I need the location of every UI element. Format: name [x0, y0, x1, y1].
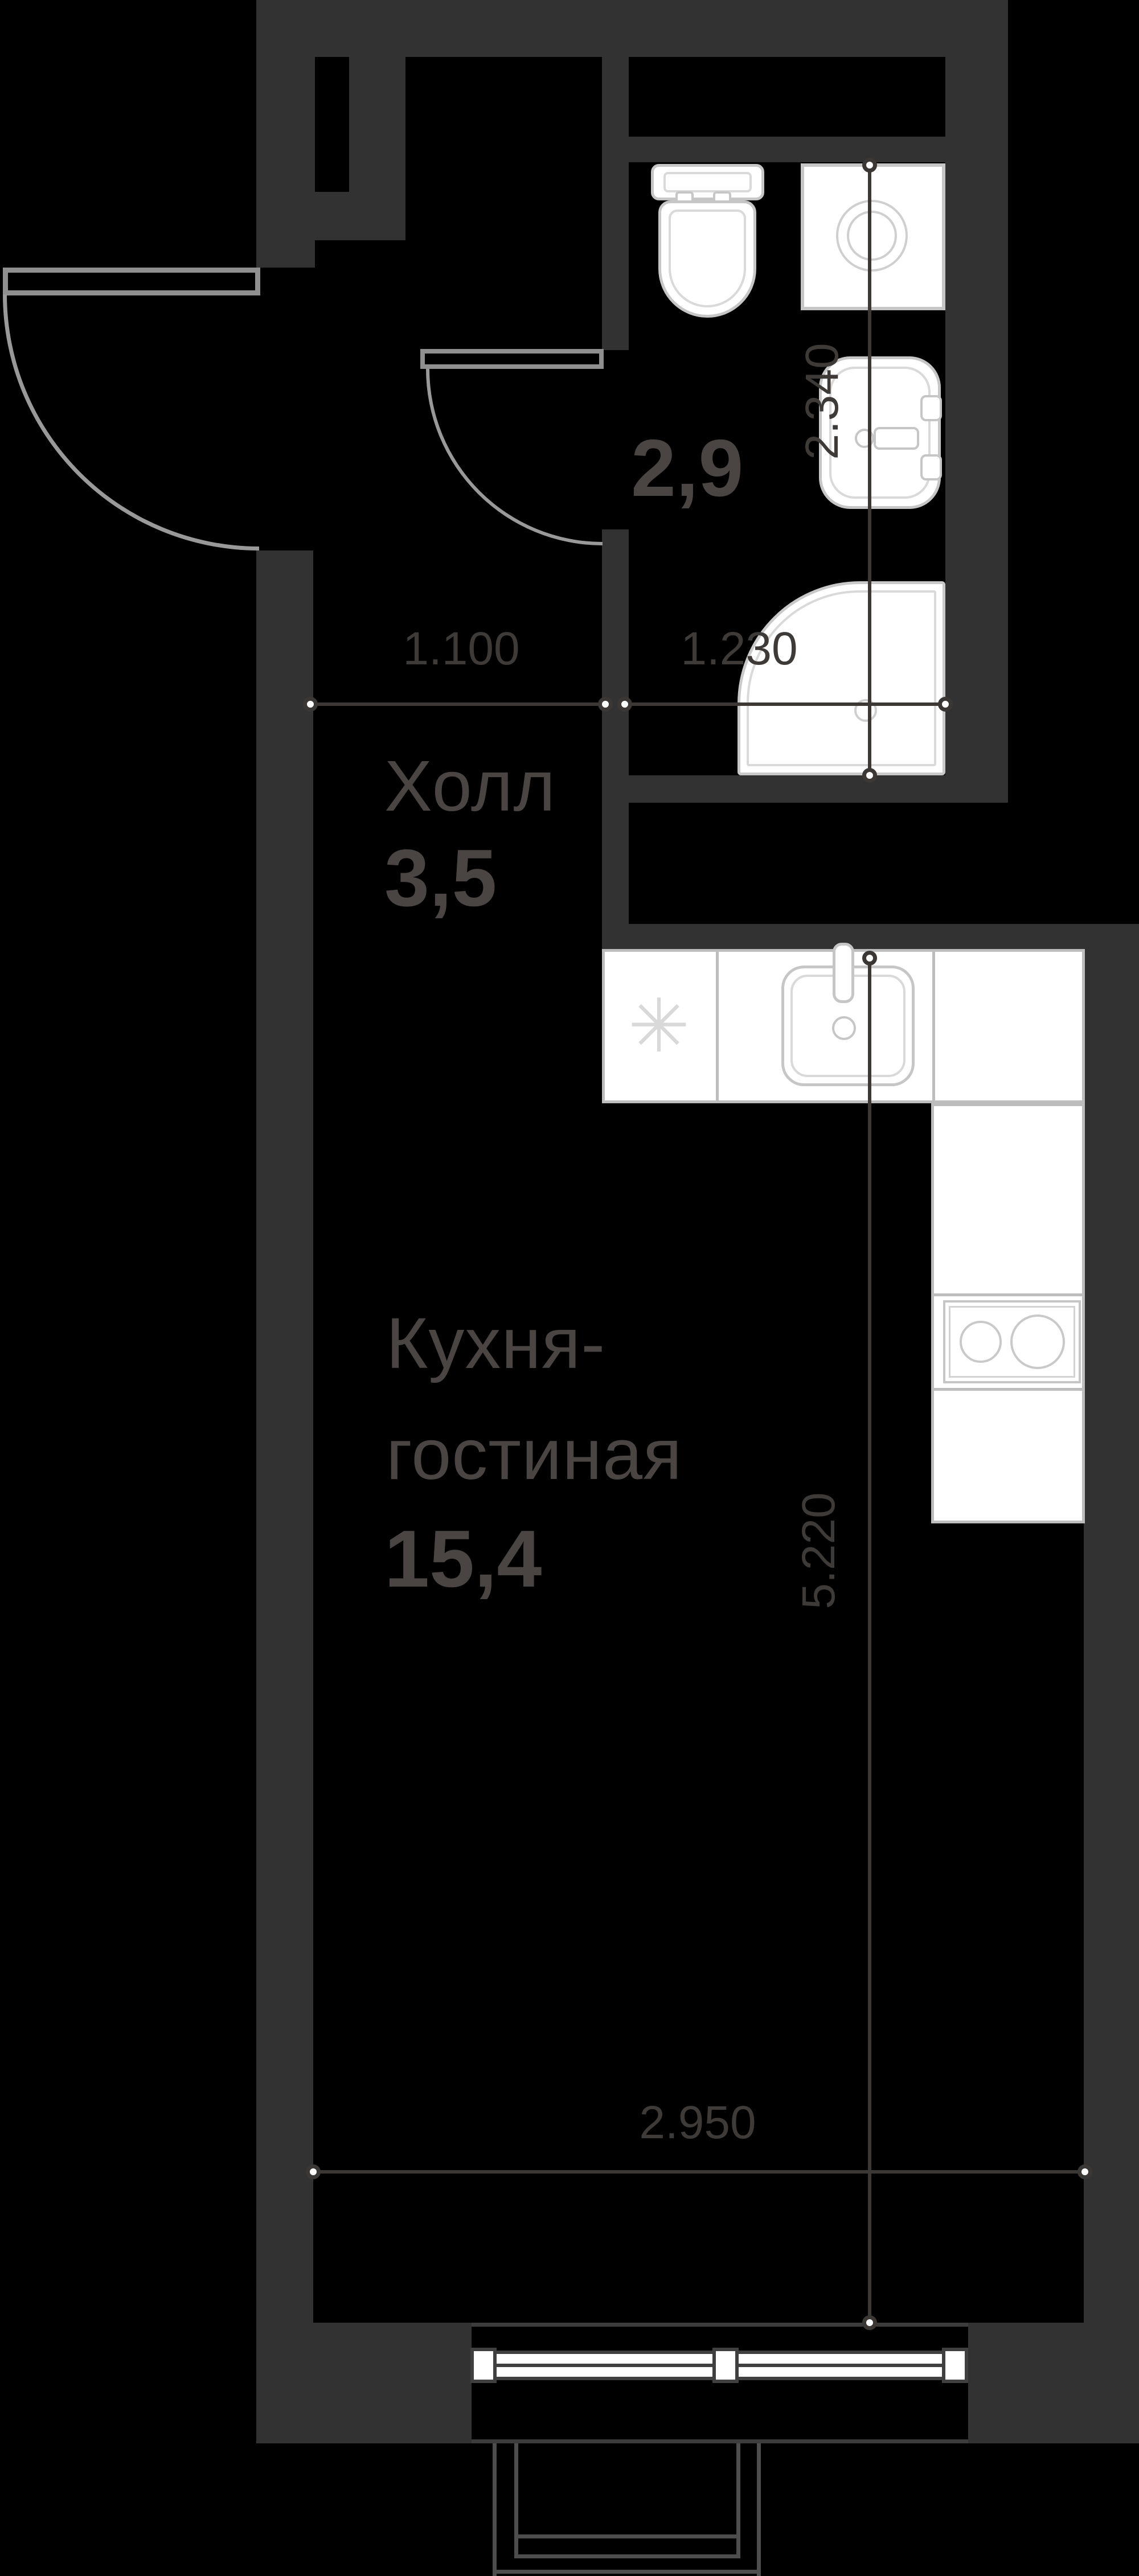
wall-bottom-right-solid — [968, 2323, 1139, 2443]
wall-bottom-left-solid — [256, 2323, 472, 2443]
fridge-location-icon: ✳ — [628, 989, 690, 1063]
balcony-inner-bottom — [514, 2554, 740, 2558]
dim-dot — [598, 697, 613, 712]
dim-dot — [862, 951, 877, 966]
balcony-inner-right — [736, 2443, 740, 2557]
bathroom-door-leaf — [420, 349, 604, 369]
dimension-line-kitchen-width — [313, 2170, 1085, 2174]
dim-dot — [862, 158, 877, 172]
balcony-inner-left — [514, 2443, 518, 2557]
entry-door-swing-arc — [3, 294, 259, 550]
dim-dot — [862, 768, 877, 783]
wall-left — [256, 550, 313, 2443]
balcony-outer-left — [493, 2443, 497, 2576]
window-wall-top-edge — [472, 2323, 968, 2327]
dimension-line-bathroom-depth — [868, 165, 871, 775]
dimension-line-hall-width — [310, 702, 605, 706]
toilet-bowl-inner — [669, 209, 746, 307]
kitchen-living-label: Кухня- гостиная — [386, 1288, 682, 1510]
wall-right-kitchen — [1084, 924, 1139, 2443]
dim-label-bathroom-width: 1.230 — [681, 626, 797, 672]
dim-dot — [862, 2315, 877, 2330]
dim-dot — [303, 697, 318, 712]
wall-right-bathroom — [945, 0, 1008, 803]
bathroom-area: 2,9 — [631, 428, 743, 509]
wall-bathroom-bottom-band — [626, 775, 1008, 803]
dim-label-kitchen-depth: 5.220 — [796, 1492, 842, 1609]
bathroom-sink-faucet-bar — [874, 427, 919, 450]
kitchen-sink-faucet — [833, 943, 854, 1003]
counter-divider-2 — [932, 949, 935, 1103]
dim-dot — [617, 697, 632, 712]
window-post-right — [942, 2348, 968, 2383]
dim-label-kitchen-width: 2.950 — [639, 2100, 756, 2146]
dim-dot — [306, 2164, 321, 2179]
wall-kitchen-top-band — [626, 924, 1139, 951]
window-wall-bottom-edge — [472, 2439, 968, 2443]
counter-right-divider-1 — [931, 1293, 1085, 1296]
wall-bathroom-left-lower — [602, 529, 629, 951]
hall-label: Холл — [384, 750, 556, 822]
wall-shaft-bottom-band — [626, 137, 945, 162]
balcony-outer-right — [757, 2443, 761, 2576]
dim-dot — [1077, 2164, 1092, 2179]
washing-machine-drum-inner — [847, 211, 897, 261]
dim-dot — [938, 697, 953, 712]
dim-label-bathroom-depth: 2.340 — [799, 343, 846, 459]
wall-bathroom-left-upper — [602, 57, 629, 350]
bathroom-sink-handle-bottom — [920, 454, 942, 480]
bathroom-door-swing-arc — [426, 369, 603, 545]
floor-plan: ✳ Холл 3,5 Кухня- гостиная 15,4 — [0, 0, 1139, 2576]
kitchen-sink-drain — [832, 1016, 856, 1040]
dimension-line-kitchen-depth — [868, 958, 871, 2323]
balcony-inner-step-line — [514, 2534, 740, 2538]
bathroom-sink-handle-top — [920, 395, 942, 421]
entry-door-leaf — [3, 268, 260, 295]
dim-label-hall-width: 1.100 — [403, 626, 519, 672]
kitchen-living-area: 15,4 — [384, 1519, 542, 1600]
wall-entry-column-left — [256, 0, 315, 268]
window-post-left — [470, 2348, 497, 2383]
stove-burner-large — [1010, 1314, 1065, 1369]
counter-divider-1 — [716, 949, 719, 1103]
window-post-middle — [712, 2348, 739, 2383]
balcony-outer-bottom — [493, 2570, 761, 2574]
stove-burner-small — [960, 1321, 1002, 1363]
counter-right-divider-2 — [931, 1388, 1085, 1391]
kitchen-living-label-line2: гостиная — [386, 1414, 682, 1494]
wall-entry-column-connector — [315, 192, 405, 240]
dimension-line-bathroom-width — [625, 702, 945, 706]
kitchen-living-label-line1: Кухня- — [386, 1303, 605, 1383]
hall-area: 3,5 — [384, 838, 497, 919]
toilet-tank-inner — [663, 172, 752, 192]
